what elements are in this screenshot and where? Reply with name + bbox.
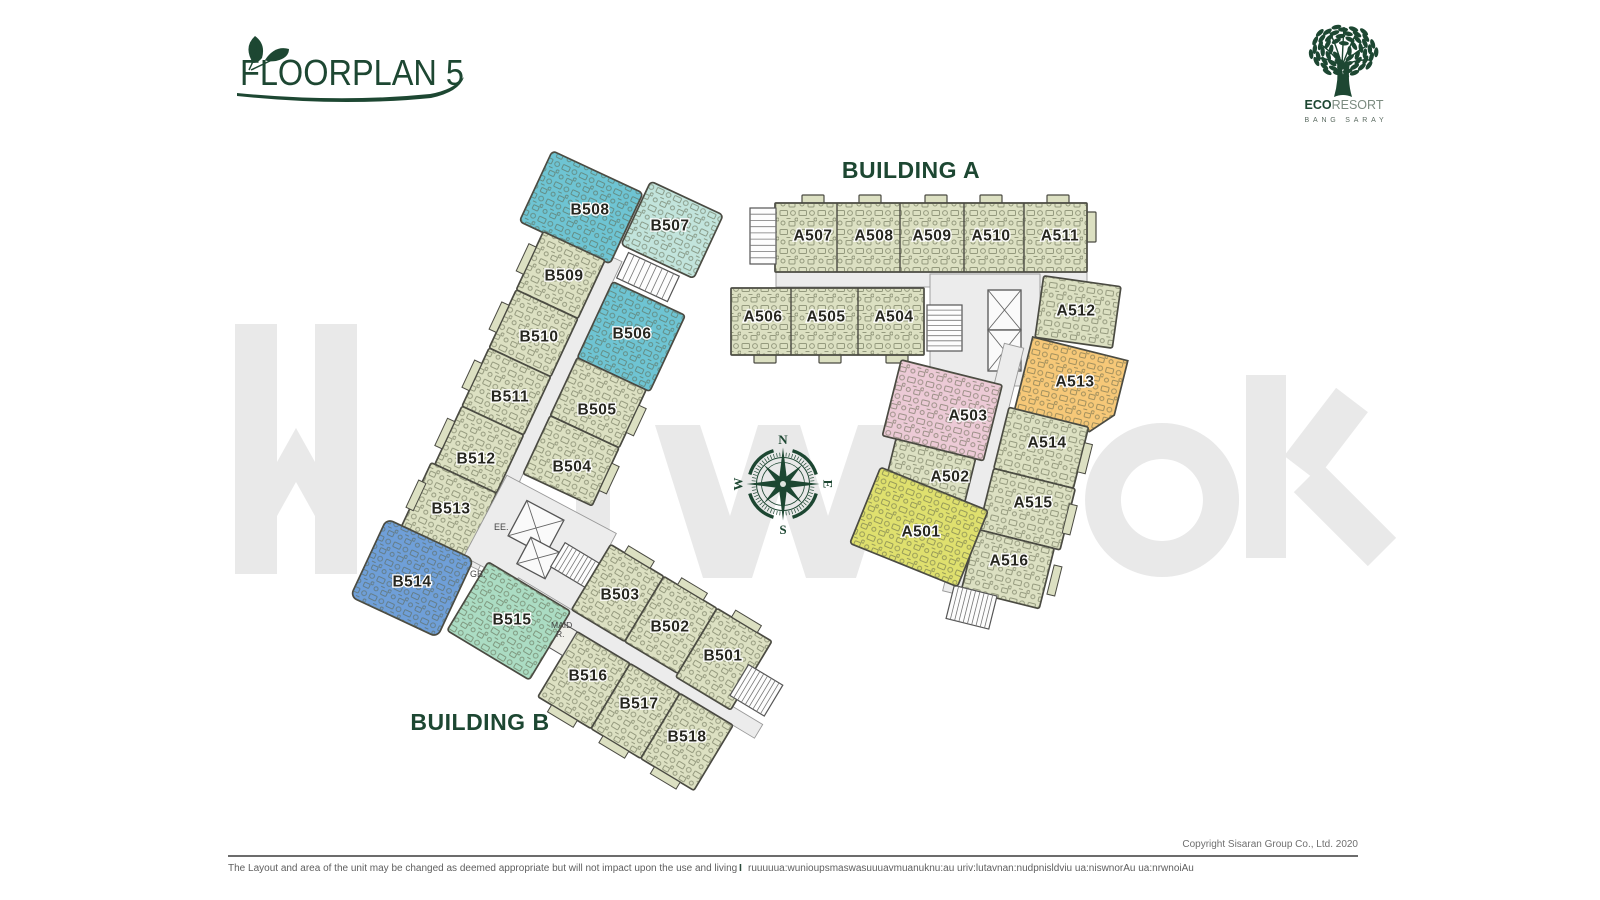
svg-text:B512: B512 — [456, 451, 495, 468]
svg-text:B518: B518 — [667, 729, 706, 746]
svg-text:B505: B505 — [577, 402, 616, 419]
svg-text:B502: B502 — [650, 619, 689, 636]
svg-text:B515: B515 — [492, 612, 531, 629]
svg-text:I: I — [739, 862, 742, 874]
svg-text:E: E — [821, 480, 836, 489]
svg-text:R.: R. — [556, 629, 565, 639]
svg-text:A501: A501 — [901, 524, 940, 541]
svg-text:A511: A511 — [1041, 228, 1079, 245]
svg-text:B517: B517 — [619, 696, 658, 713]
svg-text:B509: B509 — [544, 268, 583, 285]
svg-text:BANG SARAY: BANG SARAY — [1305, 117, 1388, 124]
svg-text:The Layout and area of the uni: The Layout and area of the unit may be c… — [228, 863, 737, 874]
svg-text:B511: B511 — [491, 389, 529, 406]
svg-text:BUILDING A: BUILDING A — [842, 157, 980, 183]
svg-text:S: S — [779, 522, 786, 537]
svg-text:B510: B510 — [519, 329, 558, 346]
svg-text:B508: B508 — [570, 202, 609, 219]
svg-text:A510: A510 — [971, 228, 1010, 245]
svg-text:B506: B506 — [612, 326, 651, 343]
svg-text:B503: B503 — [600, 587, 639, 604]
svg-text:A515: A515 — [1013, 495, 1052, 512]
svg-text:EE.: EE. — [494, 522, 509, 532]
svg-text:A505: A505 — [806, 309, 845, 326]
svg-text:A508: A508 — [854, 228, 893, 245]
svg-text:A503: A503 — [948, 408, 987, 425]
svg-text:B514: B514 — [392, 574, 431, 591]
svg-text:B516: B516 — [568, 668, 607, 685]
svg-text:A504: A504 — [874, 309, 913, 326]
svg-text:BUILDING B: BUILDING B — [410, 709, 549, 735]
svg-text:B504: B504 — [552, 459, 591, 476]
svg-text:B501: B501 — [703, 648, 742, 665]
svg-text:A502: A502 — [930, 469, 969, 486]
svg-text:A512: A512 — [1056, 303, 1095, 320]
svg-text:N: N — [778, 432, 788, 447]
svg-text:A516: A516 — [989, 553, 1028, 570]
svg-text:ruuuuua:wunioupsmaswasuuuavmua: ruuuuua:wunioupsmaswasuuuavmuanuknu:au u… — [748, 863, 1194, 874]
svg-text:A509: A509 — [912, 228, 951, 245]
svg-text:A514: A514 — [1027, 435, 1066, 452]
svg-text:W: W — [731, 478, 746, 491]
svg-text:A507: A507 — [793, 228, 832, 245]
svg-text:B507: B507 — [650, 218, 689, 235]
svg-text:A506: A506 — [743, 309, 782, 326]
svg-text:A513: A513 — [1055, 374, 1094, 391]
svg-text:GB.: GB. — [470, 569, 486, 579]
svg-text:Copyright Sisaran Group Co., L: Copyright Sisaran Group Co., Ltd. 2020 — [1182, 839, 1358, 850]
svg-text:B513: B513 — [431, 501, 470, 518]
svg-text:FLOORPLAN 5: FLOORPLAN 5 — [240, 52, 464, 93]
svg-text:ECORESORT: ECORESORT — [1305, 98, 1384, 112]
